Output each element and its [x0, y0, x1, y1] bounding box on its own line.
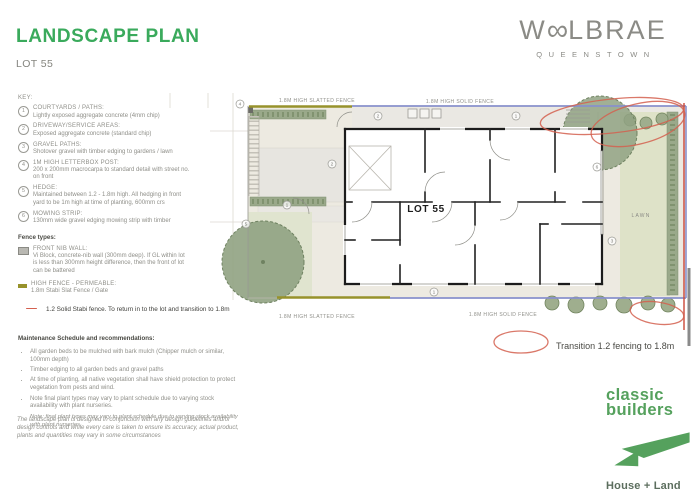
plan-callout: 6	[593, 163, 601, 171]
builder-name-line2: builders	[606, 403, 698, 418]
svg-text:4: 4	[239, 102, 242, 108]
lawn-label: LAWN	[631, 213, 650, 219]
svg-text:6: 6	[596, 165, 599, 171]
svg-text:1: 1	[515, 114, 518, 120]
plan-callout: 4	[236, 100, 244, 108]
fence-label-top-solid: 1.8M HIGH SOLID FENCE	[426, 99, 494, 105]
plan-callout: 5	[242, 220, 250, 228]
plan-callout: 1	[430, 288, 438, 296]
landscape-plan-sheet: LANDSCAPE PLAN LOT 55 W∞LBRAE QUEENSTOWN…	[0, 0, 700, 500]
roof-icon	[608, 425, 696, 469]
letterbox	[248, 107, 253, 113]
fence-label-bottom-solid: 1.8M HIGH SOLID FENCE	[469, 312, 537, 318]
svg-text:2: 2	[331, 162, 334, 168]
lot-label: LOT 55	[407, 204, 445, 215]
svg-text:5: 5	[245, 222, 248, 228]
svg-text:1: 1	[433, 290, 436, 296]
site-plan-drawing: 1.8M HIGH SLATTED FENCE 1.8M HIGH SOLID …	[0, 0, 700, 500]
plan-callout: 2	[328, 160, 336, 168]
plan-callout: 3	[608, 237, 616, 245]
fence-label-bottom-slatted: 1.8M HIGH SLATTED FENCE	[279, 314, 355, 320]
plan-callout: 1	[283, 201, 291, 209]
classic-builders-logo: classic builders House + Land	[606, 388, 698, 492]
svg-text:1: 1	[286, 203, 289, 209]
builder-tagline: House + Land	[606, 480, 698, 492]
plan-callout: 2	[374, 112, 382, 120]
fence-label-top-slatted: 1.8M HIGH SLATTED FENCE	[279, 98, 355, 104]
transition-annotation: Transition 1.2 fencing to 1.8m	[556, 341, 674, 351]
svg-text:2: 2	[377, 114, 380, 120]
svg-text:3: 3	[611, 239, 614, 245]
plan-callout: 1	[512, 112, 520, 120]
